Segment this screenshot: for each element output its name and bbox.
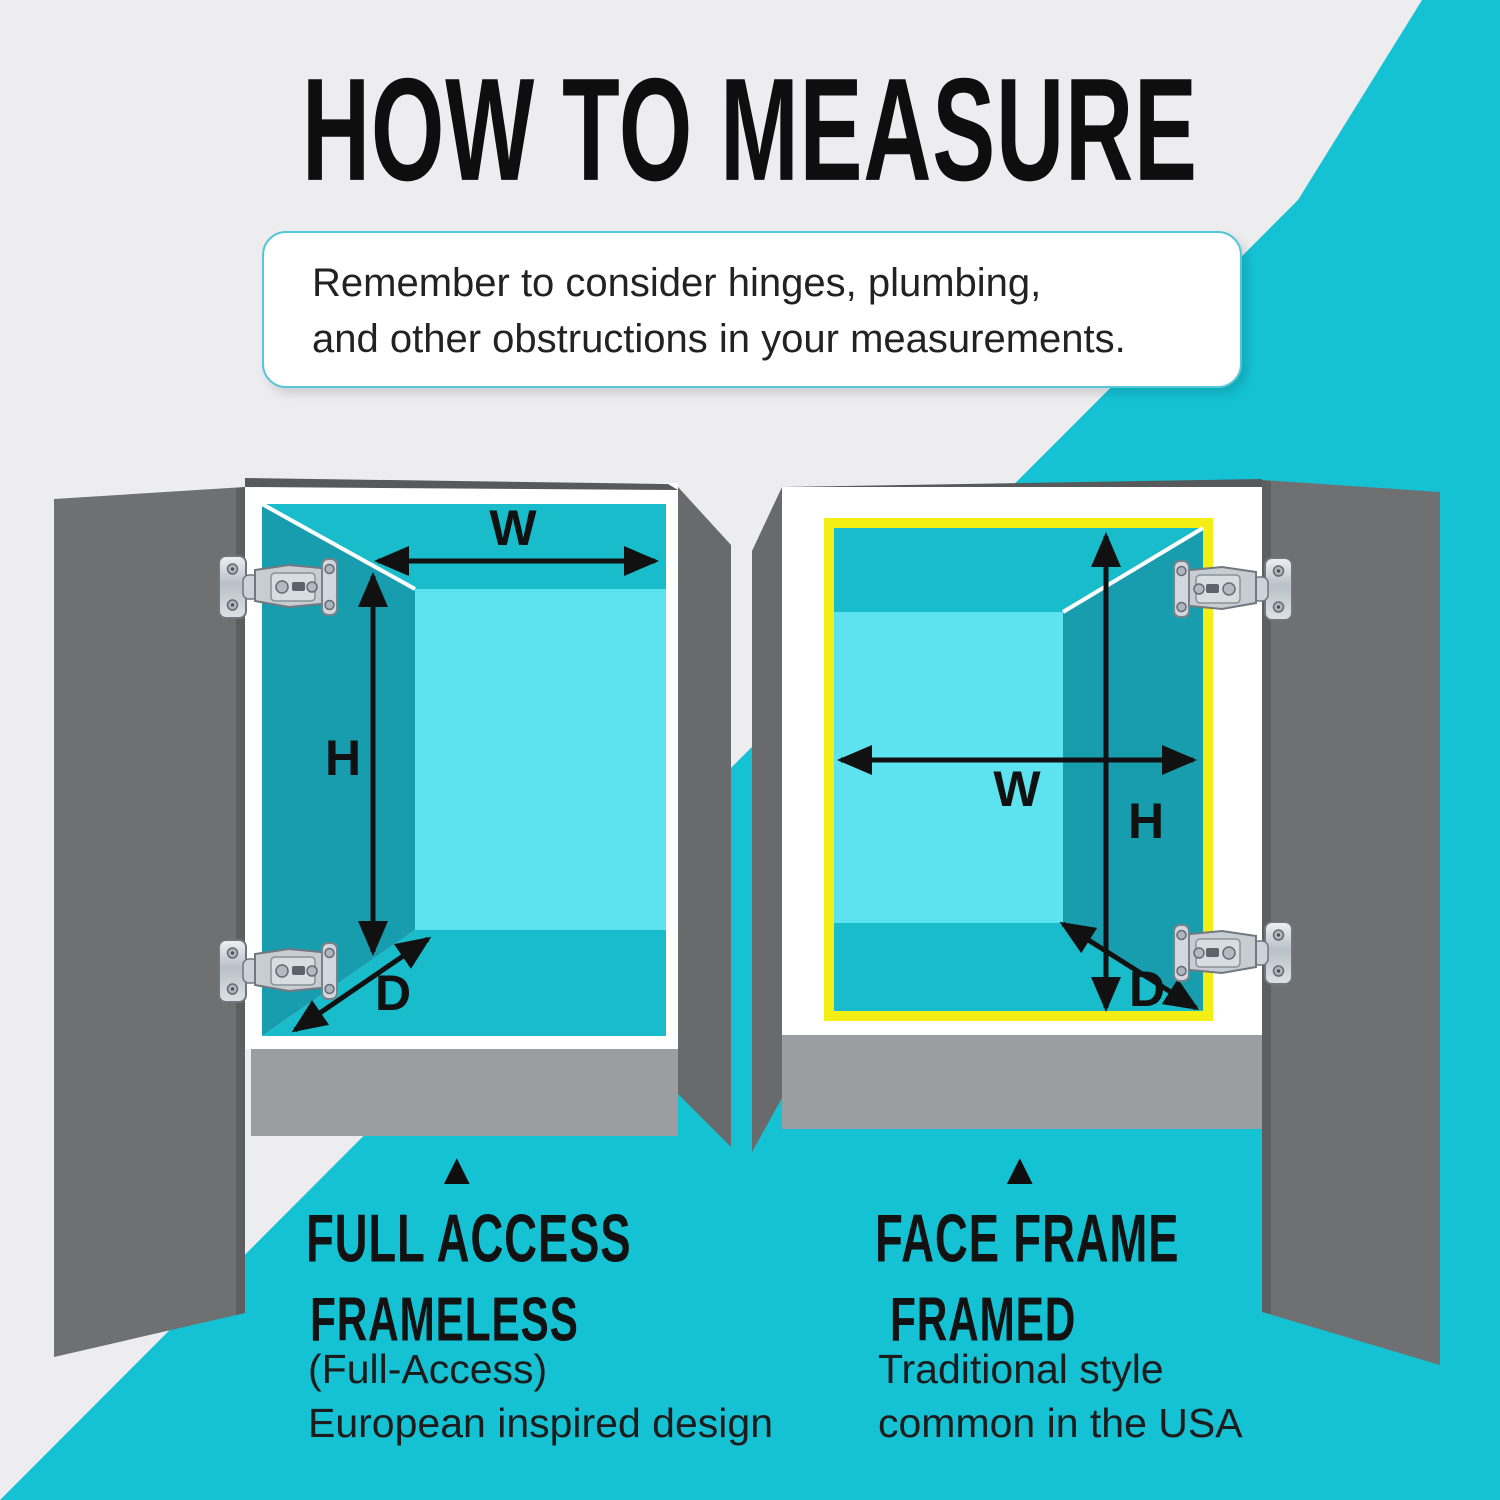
legend-right-heading: FACE FRAME xyxy=(875,1200,1179,1278)
legend-left-detail-2: European inspired design xyxy=(308,1400,773,1447)
cabinet-base xyxy=(782,1035,1262,1129)
cabinet-side-panel xyxy=(752,487,782,1152)
width-label: W xyxy=(993,761,1041,817)
diagram-scene: W H D xyxy=(0,0,1500,1500)
cabinet-base xyxy=(251,1049,678,1136)
height-label: H xyxy=(1128,793,1164,849)
height-label: H xyxy=(325,730,361,786)
legend-right-detail-1: Traditional style xyxy=(878,1346,1164,1393)
up-triangle-icon: ▲ xyxy=(435,1148,479,1192)
legend-left-heading: FULL ACCESS xyxy=(306,1200,631,1278)
page-title-text: HOW TO MEASURE xyxy=(302,46,1198,215)
depth-label: D xyxy=(1129,961,1165,1017)
cabinet-side-panel xyxy=(678,487,731,1147)
measurement-note-text: Remember to consider hinges, plumbing, a… xyxy=(312,255,1126,367)
up-triangle-icon: ▲ xyxy=(998,1148,1042,1192)
width-label: W xyxy=(489,500,537,556)
note-line-1: Remember to consider hinges, plumbing, xyxy=(312,255,1126,311)
depth-label: D xyxy=(375,965,411,1021)
measurement-note-box: Remember to consider hinges, plumbing, a… xyxy=(262,231,1242,388)
legend-right-detail-2: common in the USA xyxy=(878,1400,1243,1447)
cabinet-door xyxy=(54,487,245,1357)
legend-left-detail-1: (Full-Access) xyxy=(308,1346,547,1393)
note-line-2: and other obstructions in your measureme… xyxy=(312,311,1126,367)
infographic-how-to-measure: W H D xyxy=(0,0,1500,1500)
page-title: HOW TO MEASURE xyxy=(0,46,1500,182)
interior-back-wall xyxy=(415,589,666,930)
